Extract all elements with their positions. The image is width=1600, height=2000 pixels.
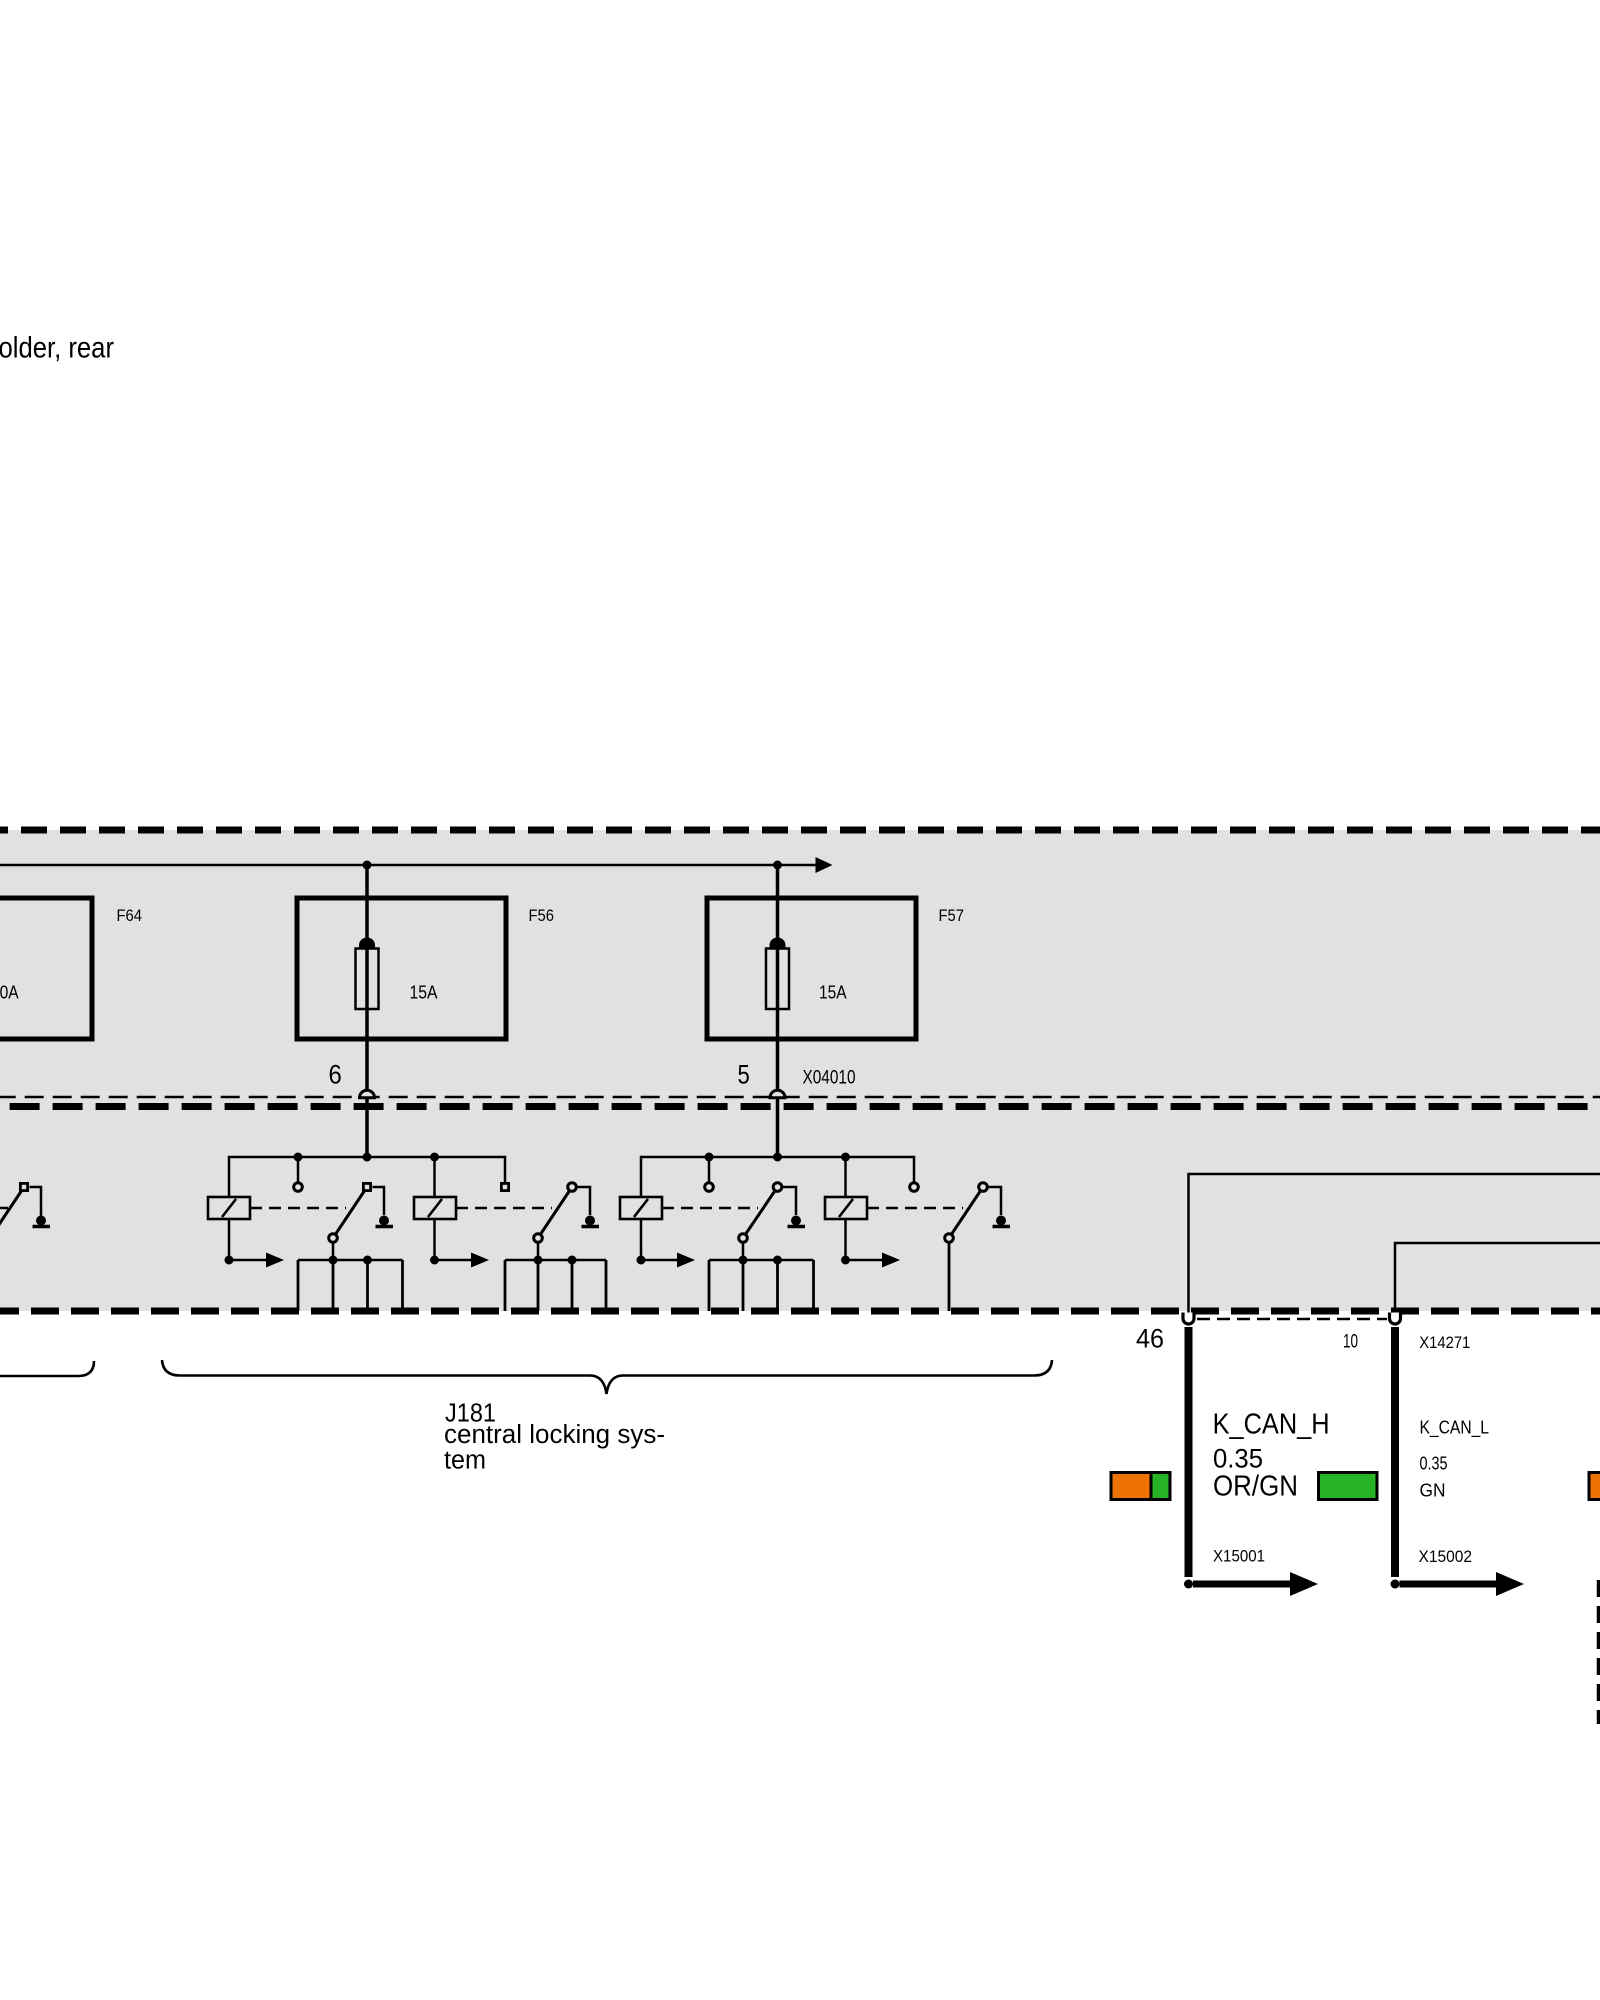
svg-text:older, rear: older, rear <box>0 332 114 365</box>
svg-text:X14271: X14271 <box>1419 1333 1470 1352</box>
svg-text:15A: 15A <box>410 982 438 1002</box>
svg-text:0.35: 0.35 <box>1420 1453 1448 1474</box>
svg-text:X15001: X15001 <box>1213 1547 1265 1566</box>
svg-text:K_CAN_H: K_CAN_H <box>1213 1409 1330 1441</box>
svg-text:tem: tem <box>444 1447 486 1475</box>
svg-text:GN: GN <box>1420 1480 1446 1501</box>
svg-text:F64: F64 <box>117 906 143 925</box>
svg-text:10: 10 <box>1343 1332 1358 1353</box>
svg-text:OR/GN: OR/GN <box>1213 1471 1298 1503</box>
svg-text:5: 5 <box>738 1060 750 1090</box>
svg-text:F57: F57 <box>939 906 965 925</box>
svg-text:6: 6 <box>329 1059 342 1089</box>
svg-text:0.35: 0.35 <box>1213 1444 1263 1474</box>
svg-text:X04010: X04010 <box>803 1067 856 1088</box>
svg-text:X15002: X15002 <box>1419 1547 1473 1566</box>
svg-text:F56: F56 <box>529 906 555 925</box>
svg-text:central locking sys-: central locking sys- <box>444 1421 665 1449</box>
svg-text:46: 46 <box>1136 1324 1164 1354</box>
svg-text:30A: 30A <box>0 983 19 1003</box>
svg-text:15A: 15A <box>819 982 847 1002</box>
svg-text:K_CAN_L: K_CAN_L <box>1420 1417 1490 1439</box>
